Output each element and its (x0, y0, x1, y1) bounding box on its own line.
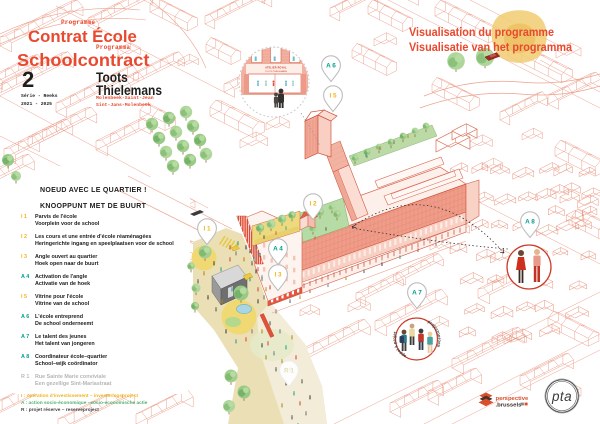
svg-text:A 4: A 4 (273, 246, 283, 253)
svg-text:A 8: A 8 (525, 219, 535, 226)
svg-text:.brussels: .brussels (496, 403, 523, 409)
svg-text:A 6: A 6 (326, 63, 336, 70)
svg-text:I 2: I 2 (309, 201, 317, 208)
svg-text:ATELIER ROYAL: ATELIER ROYAL (265, 67, 287, 70)
svg-text:I 1: I 1 (203, 226, 211, 233)
svg-text:R 1: R 1 (284, 368, 294, 375)
svg-text:pta: pta (551, 389, 572, 404)
svg-text:I 3: I 3 (274, 272, 282, 279)
svg-text:I 5: I 5 (329, 93, 337, 100)
svg-text:A 7: A 7 (412, 290, 422, 297)
svg-text:perspective: perspective (496, 396, 529, 402)
svg-text:TOOTS THIELEMANS: TOOTS THIELEMANS (265, 70, 288, 73)
